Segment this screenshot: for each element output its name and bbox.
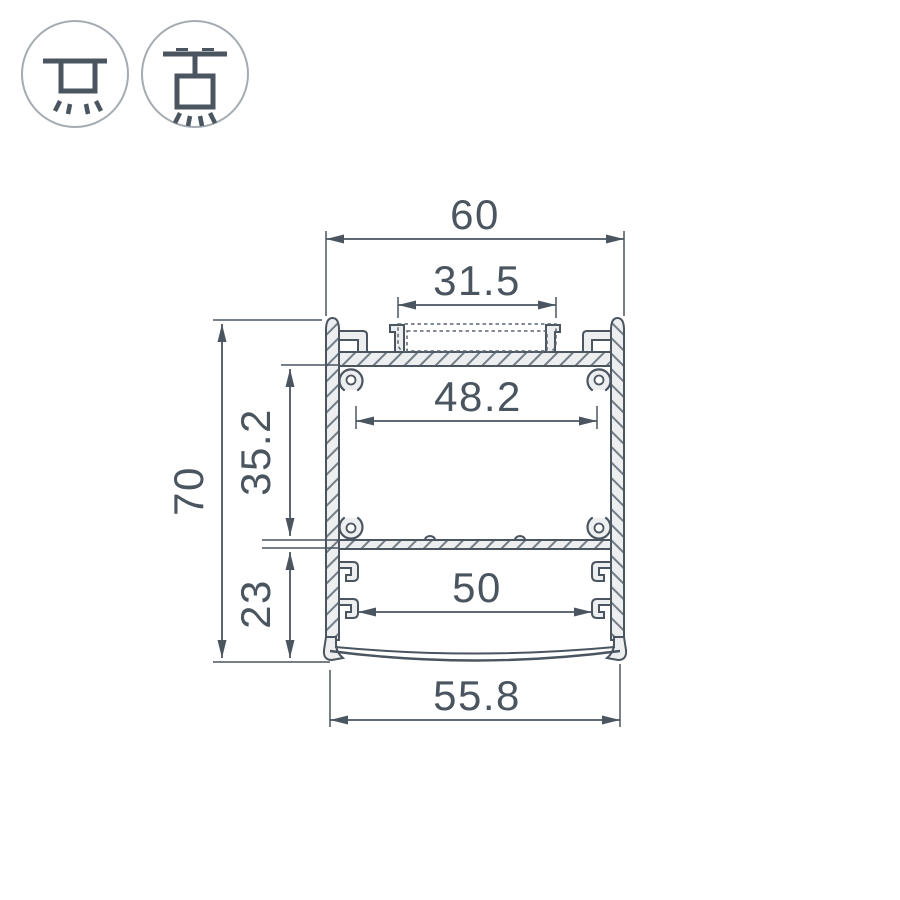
- dimensions: 60 31.5 48.2 50 55.8 70: [165, 191, 624, 727]
- profile-right-half: [546, 318, 626, 660]
- divider-bump: [425, 536, 435, 540]
- dim-cover-width-label: 31.5: [433, 257, 521, 304]
- cover-dashed-outline: [398, 324, 556, 352]
- dim-lower-section-height: 23: [232, 548, 338, 658]
- dim-diffuser-width: 55.8: [330, 664, 620, 727]
- dim-diffuser-width-label: 55.8: [433, 672, 521, 719]
- dim-lower-inner-width-label: 50: [452, 564, 502, 611]
- dim-upper-inner-width-label: 48.2: [434, 373, 522, 420]
- dim-upper-section-height: 35.2: [232, 365, 338, 540]
- dim-lower-inner-width: 50: [358, 564, 592, 612]
- top-plate: [339, 352, 611, 366]
- dim-lower-section-height-label: 23: [232, 579, 279, 629]
- middle-divider-plate: [339, 540, 611, 549]
- technical-drawing: 60 31.5 48.2 50 55.8 70: [0, 0, 900, 900]
- dim-overall-height-label: 70: [165, 466, 212, 516]
- dim-overall-width-label: 60: [450, 191, 500, 238]
- page: 60 31.5 48.2 50 55.8 70: [0, 0, 900, 900]
- divider-bump: [515, 536, 525, 540]
- dim-cover-width: 31.5: [398, 257, 556, 318]
- pendant-mount-icon: [142, 21, 248, 127]
- profile-left-half: [324, 318, 404, 660]
- cover-dashed-inner: [407, 331, 547, 351]
- bottom-diffuser: [330, 647, 620, 661]
- surface-mount-icon: [22, 21, 128, 127]
- dim-upper-inner-width: 48.2: [356, 373, 597, 429]
- dim-upper-section-height-label: 35.2: [232, 408, 279, 496]
